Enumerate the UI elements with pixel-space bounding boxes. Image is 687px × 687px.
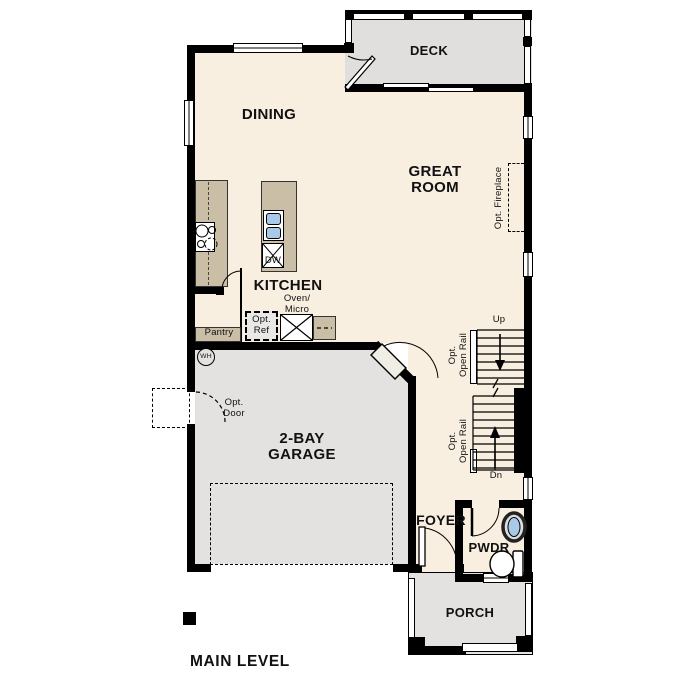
- window-mullion: [234, 48, 302, 49]
- opt-fireplace-dashed-outline: [508, 163, 524, 232]
- dining-window-left: [184, 100, 194, 146]
- sink-basin: [266, 213, 281, 225]
- stair-landing-window: [523, 477, 533, 500]
- garage-storage-dashed-outline: [210, 483, 393, 565]
- stair-railing-lower: [470, 449, 477, 473]
- porch-step: [462, 643, 518, 652]
- foyer-front-wall-left: [408, 564, 422, 572]
- opt-open-rail-upper-line2: Open Rail: [459, 330, 470, 380]
- great-room-label: GREAT ROOM: [385, 164, 485, 196]
- opt-open-rail-lower-line2: Open Rail: [459, 416, 470, 466]
- porch-railing-left: [408, 578, 415, 638]
- garage-hall-wall: [408, 376, 416, 572]
- water-heater-label: WH: [197, 353, 215, 361]
- deck-railing-top: [347, 13, 530, 20]
- foyer-label: FOYER: [401, 513, 481, 528]
- cooktop: [195, 222, 215, 252]
- powder-window: [483, 573, 509, 583]
- sink-basin: [266, 227, 281, 239]
- opt-ref-label-line2: Ref: [245, 326, 278, 337]
- down-label: Dn: [476, 471, 516, 482]
- deck-post: [522, 10, 532, 20]
- dishwasher-label: DW: [253, 256, 293, 267]
- garage-label: 2-BAY GARAGE: [242, 431, 362, 463]
- floor-plan: DECK DINING GREAT ROOM KITCHEN 2-BAY GAR…: [0, 0, 687, 687]
- oven-micro-label-line2: Micro: [267, 305, 327, 316]
- oven-micro-label: Oven/ Micro: [267, 294, 327, 315]
- powder-wall-top-right: [499, 500, 532, 508]
- oven-micro-box: [280, 314, 313, 341]
- window-mullion: [484, 578, 508, 579]
- window-mullion: [528, 117, 529, 138]
- opt-door-label: Opt. Door: [204, 398, 264, 419]
- deck-post: [404, 12, 413, 20]
- deck-slider-door-panel: [428, 87, 474, 92]
- up-label: Up: [479, 315, 519, 326]
- window-mullion: [528, 253, 529, 276]
- opt-open-rail-upper-label: Opt. Open Rail: [448, 330, 470, 380]
- garage-label-line2: GARAGE: [242, 447, 362, 463]
- legend-square: [183, 612, 196, 625]
- window-mullion: [528, 478, 529, 499]
- window-mullion: [189, 101, 190, 145]
- deck-post: [523, 37, 532, 46]
- main-floor-area: [195, 53, 524, 343]
- kitchen-garage-wall: [187, 342, 379, 350]
- stair-side-wall: [514, 388, 532, 473]
- deck-railing-right-lower: [524, 46, 531, 84]
- kitchen-label: KITCHEN: [238, 278, 338, 294]
- great-room-window-2: [523, 252, 533, 277]
- porch-post-right: [516, 636, 532, 652]
- great-room-window-1: [523, 116, 533, 139]
- powder-label: PWDR: [449, 541, 529, 555]
- plan-title: MAIN LEVEL: [190, 654, 350, 671]
- stair-railing-upper: [470, 330, 477, 384]
- porch-front-wall: [416, 646, 466, 654]
- great-room-label-line2: ROOM: [385, 180, 485, 196]
- great-room-label-line1: GREAT: [385, 164, 485, 180]
- opt-door-dashed-outline: [152, 388, 190, 428]
- opt-ref-label: Opt. Ref: [245, 315, 278, 336]
- kitchen-cabinet-small: [313, 316, 336, 340]
- porch-railing-right: [525, 583, 532, 636]
- garage-label-line1: 2-BAY: [242, 431, 362, 447]
- garage-front-wall-left: [187, 564, 211, 572]
- deck-post: [464, 12, 473, 20]
- dining-label: DINING: [219, 107, 319, 123]
- opt-door-label-line2: Door: [204, 409, 264, 420]
- deck-slider-door-panel: [383, 83, 429, 88]
- deck-label: DECK: [389, 44, 469, 58]
- dining-window-top: [233, 43, 303, 53]
- deck-post: [345, 10, 354, 20]
- pantry-label: Pantry: [189, 328, 249, 339]
- opt-fireplace-label: Opt. Fireplace: [494, 162, 506, 234]
- opt-open-rail-lower-label: Opt. Open Rail: [448, 416, 470, 466]
- porch-label: PORCH: [430, 606, 510, 620]
